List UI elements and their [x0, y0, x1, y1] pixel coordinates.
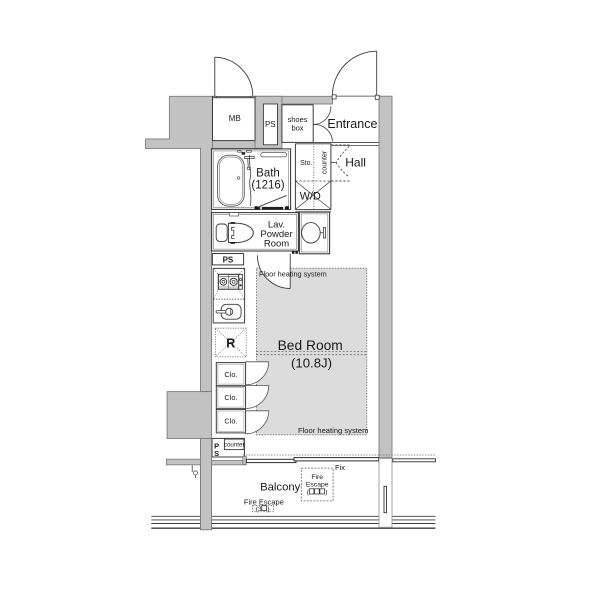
svg-text:Fix: Fix: [335, 463, 345, 472]
svg-text:): ): [267, 506, 269, 513]
svg-text:(1216): (1216): [251, 180, 284, 192]
svg-text:Floor heating system: Floor heating system: [259, 269, 327, 278]
svg-text:(10.8J): (10.8J): [291, 355, 332, 370]
svg-text:R: R: [226, 336, 235, 350]
svg-text:Entrance: Entrance: [327, 117, 377, 131]
svg-text:Sto.: Sto.: [300, 160, 313, 167]
svg-text:PS: PS: [223, 256, 234, 265]
svg-text:W/D: W/D: [300, 190, 321, 202]
svg-text:Balcony: Balcony: [260, 481, 301, 493]
svg-text:PS: PS: [265, 120, 276, 129]
svg-text:Escape: Escape: [306, 482, 329, 489]
svg-text:Hall: Hall: [345, 155, 366, 169]
svg-text:MB: MB: [229, 114, 241, 123]
svg-text:(3: (3: [256, 506, 262, 513]
svg-text:Floor heating system: Floor heating system: [298, 426, 368, 435]
svg-text:Fire Escape: Fire Escape: [244, 498, 284, 507]
svg-text:Clo.: Clo.: [224, 416, 237, 425]
svg-text:Clo.: Clo.: [224, 393, 237, 402]
svg-text:box: box: [291, 124, 303, 133]
svg-text:S: S: [214, 449, 219, 458]
svg-text:Bath: Bath: [256, 167, 280, 179]
svg-text:Fire: Fire: [311, 474, 323, 481]
svg-text:Clo.: Clo.: [224, 370, 237, 379]
svg-text:counter: counter: [224, 442, 245, 449]
svg-text:counter: counter: [321, 150, 328, 174]
svg-text:Room: Room: [264, 238, 289, 249]
svg-text:Bed Room: Bed Room: [278, 338, 343, 353]
svg-text:): ): [325, 489, 327, 496]
